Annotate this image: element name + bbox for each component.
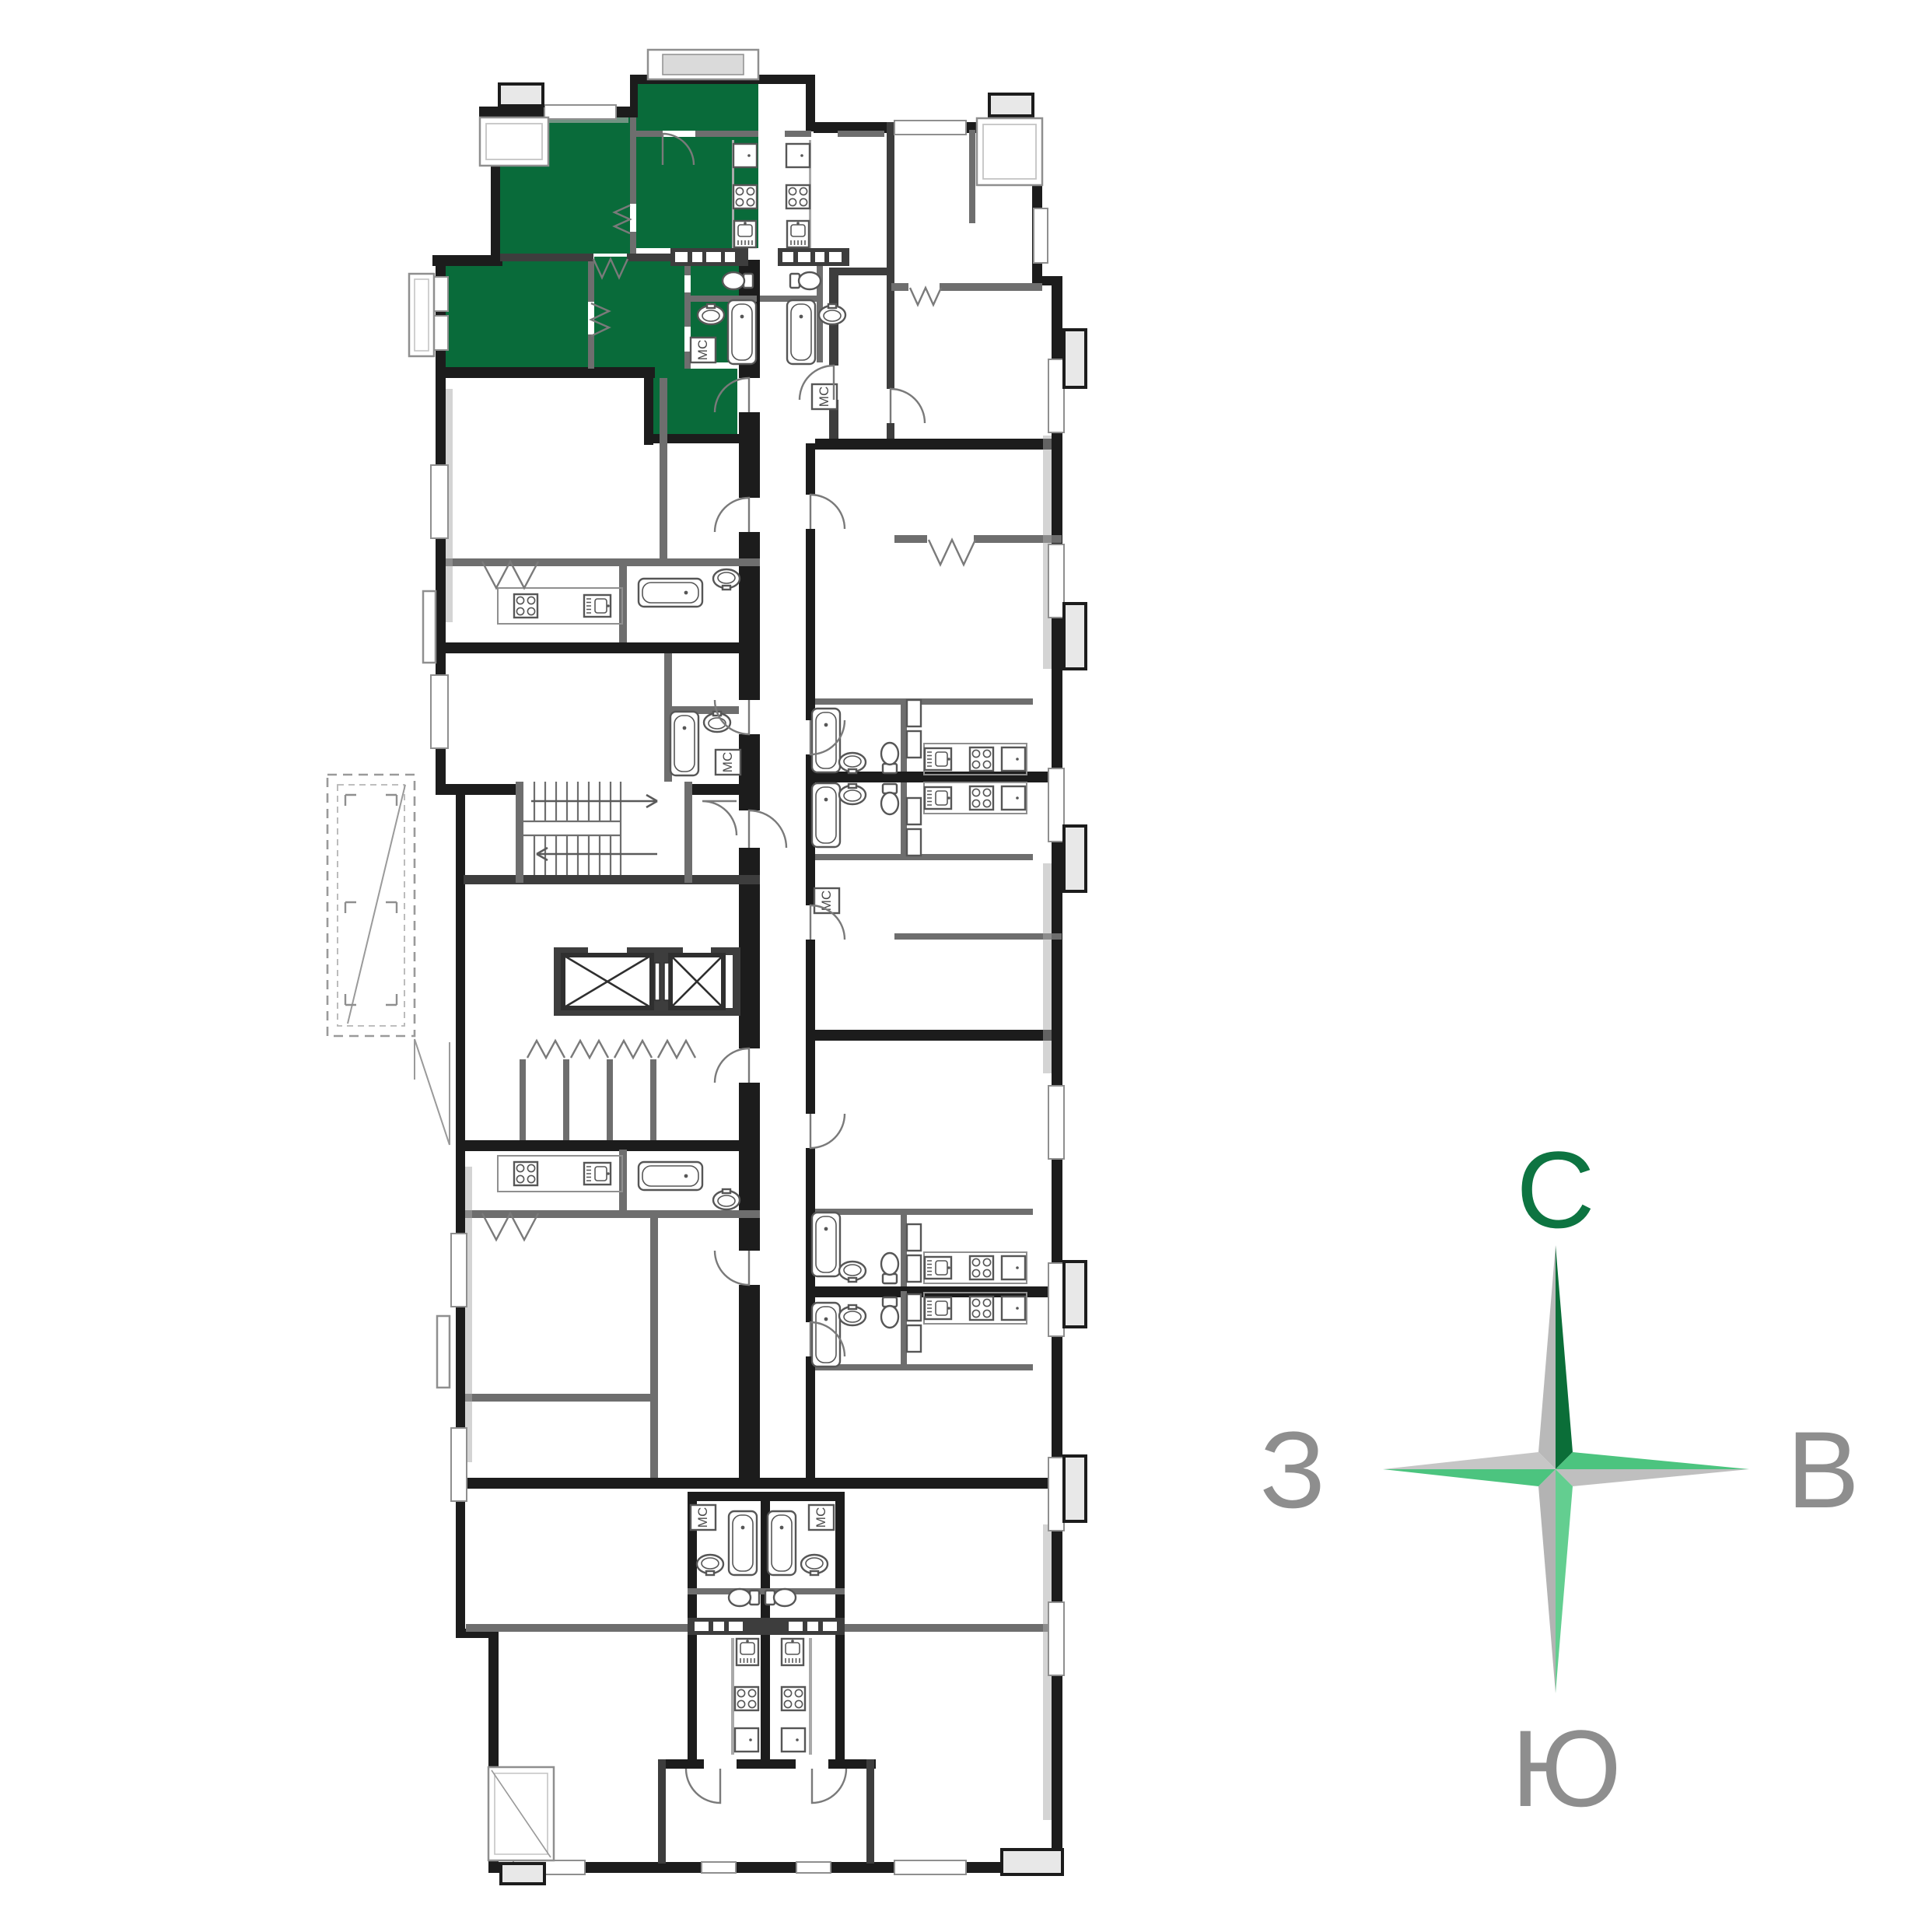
compass-label-north: С <box>1516 1129 1594 1251</box>
loggia <box>977 118 1042 185</box>
stove-icon <box>735 1687 758 1710</box>
kitchen-sink-icon <box>782 1639 803 1665</box>
fridge-icon <box>1002 786 1025 810</box>
bathtub-icon <box>812 1213 840 1276</box>
adjacent-section-outline <box>327 775 450 1145</box>
toilet-icon <box>729 1589 759 1606</box>
kitchen-sink-icon <box>787 221 809 247</box>
kitchen-sink-icon <box>584 1163 611 1185</box>
stove-icon <box>733 185 757 208</box>
stove-icon <box>970 786 993 810</box>
sink-icon <box>839 784 866 804</box>
kitchen-sink-icon <box>925 787 951 809</box>
compass-star <box>1383 1245 1749 1693</box>
compass-label-south: Ю <box>1511 1707 1621 1829</box>
elevator-shaft-1 <box>563 955 652 1008</box>
sink-icon <box>839 1305 866 1325</box>
green-hall <box>594 261 684 369</box>
balcony <box>409 274 434 356</box>
toilet-icon <box>881 743 898 773</box>
stove-icon <box>514 594 537 618</box>
toilet-icon <box>790 272 821 289</box>
bathtub-icon <box>787 300 815 364</box>
bathtub-icon <box>768 1511 796 1575</box>
balcony-tab <box>499 84 543 106</box>
kitchen-sink-icon <box>925 1257 951 1279</box>
loggia <box>480 117 548 166</box>
elevators <box>563 955 723 1008</box>
bathtub-icon <box>639 1162 702 1190</box>
sink-icon <box>697 1555 723 1575</box>
balcony-tab <box>1002 1850 1062 1874</box>
toilet-icon <box>881 784 898 814</box>
bathtub-icon <box>639 579 702 607</box>
balcony <box>423 591 436 663</box>
compass-label-west: З <box>1260 1409 1326 1531</box>
washer-label: МС <box>720 752 735 772</box>
toilet-icon <box>881 1253 898 1283</box>
green-bedroom <box>500 166 630 254</box>
balcony-tab <box>1064 1262 1086 1327</box>
balcony-tab <box>989 94 1033 116</box>
toilet-icon <box>723 272 753 289</box>
floor-plan-page: МС МС МС МС МС МС <box>0 0 1932 1932</box>
fridge-icon <box>1002 1256 1025 1279</box>
washer-label: МС <box>695 1507 710 1528</box>
kitchen-sink-icon <box>737 1639 758 1665</box>
vent-shafts <box>670 248 921 1635</box>
sink-icon <box>839 753 866 773</box>
green-living-room <box>446 261 588 369</box>
compass-label-east: В <box>1787 1409 1859 1531</box>
fridge-icon <box>786 144 810 167</box>
sink-icon <box>819 304 845 324</box>
stove-icon <box>786 185 810 208</box>
balcony-tab <box>1064 826 1086 891</box>
kitchen-sink-icon <box>925 748 951 770</box>
bathtub-icon <box>728 300 756 364</box>
compass-rose: С В Ю З <box>1260 1129 1860 1829</box>
bathtub-icon <box>729 1511 757 1575</box>
fridge-icon <box>733 144 757 167</box>
stove-icon <box>970 1297 993 1320</box>
kitchen-sink-icon <box>584 595 611 617</box>
sink-icon <box>713 569 740 590</box>
stairwell <box>523 782 684 875</box>
washer-label: МС <box>814 1507 828 1528</box>
sink-icon <box>839 1262 866 1282</box>
fridge-icon <box>735 1728 758 1752</box>
bathtub-icon <box>812 783 840 847</box>
balcony-tab <box>1064 330 1086 387</box>
fridge-icon <box>1002 1297 1025 1320</box>
stove-icon <box>782 1687 805 1710</box>
washer-label: МС <box>695 340 710 360</box>
fridge-icon <box>1002 747 1025 771</box>
sink-icon <box>713 1189 740 1209</box>
balcony-tab <box>501 1864 544 1884</box>
stove-icon <box>970 747 993 771</box>
elevator-shaft-2 <box>670 955 723 1008</box>
stove-icon <box>514 1162 537 1185</box>
toilet-icon <box>765 1589 796 1606</box>
green-entry-hall <box>636 82 758 131</box>
toilet-icon <box>881 1297 898 1328</box>
stove-icon <box>970 1256 993 1279</box>
kitchen-sink-icon <box>734 221 756 247</box>
bathtub-icon <box>670 712 698 775</box>
balcony-tab <box>1064 604 1086 669</box>
balcony <box>437 1316 450 1388</box>
kitchen-sink-icon <box>925 1297 951 1319</box>
washer-label: МС <box>817 387 831 407</box>
sink-icon <box>801 1555 828 1575</box>
floor-plan: МС МС МС МС МС МС <box>0 0 1932 1932</box>
fridge-icon <box>782 1728 805 1752</box>
balcony-tab <box>1064 1456 1086 1521</box>
stair-lobby-door <box>702 801 737 835</box>
bathtub-icon <box>812 709 840 772</box>
